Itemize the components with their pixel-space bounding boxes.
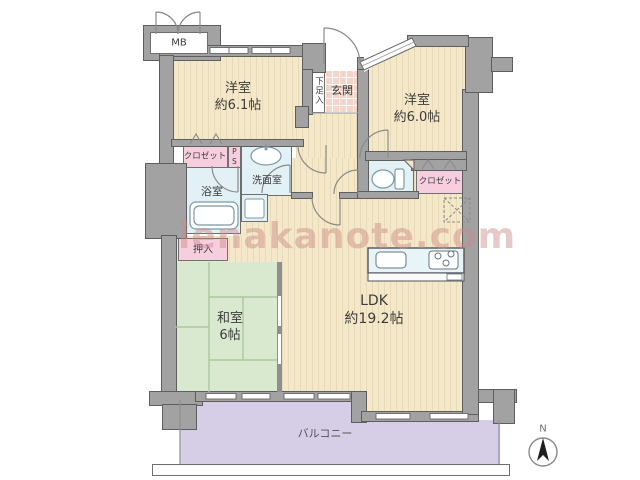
meter-box-label: MB [171,37,187,50]
sink-icon [251,144,281,165]
pipe-space-label: PS [229,147,239,167]
shoe-box-label: 下足入 [312,77,323,106]
door-arcs [212,28,388,225]
north-label: N [539,424,546,435]
toilet-door-arc [334,170,358,194]
closet-right-label: クロゼット [419,176,462,187]
closet-left-label: クロゼット [184,151,227,162]
balcony-label: バルコニー [298,427,353,441]
watermark: ienakanote.com [178,216,516,257]
floor-plan: MB 洋室約6.1帖 洋室約6.0帖 玄関 下足入 クロゼット PS 洗面室 浴… [0,0,640,480]
entrance-label: 玄関 [331,84,353,98]
washroom-label: 洗面室 [252,175,282,188]
bedroom2-door-arc [360,130,388,158]
bedroom1-label: 洋室約6.1帖 [215,81,262,115]
hanger-icons-right [422,160,456,169]
bedroom1-door-arc [298,145,326,173]
bedroom2-corner-window [360,38,416,72]
front-door-arc [324,28,360,64]
bathroom-label: 浴室 [201,185,223,199]
toilet-icon [372,169,404,189]
japanese-room-label: 和室6帖 [217,311,243,345]
ldk-label: LDK約19.2帖 [344,292,403,328]
toilet-corner-cut [404,160,414,170]
north-compass-icon [529,438,557,466]
mb-double-door-icon [156,12,200,34]
hanger-icons-left [190,134,222,144]
bedroom2-label: 洋室約6.0帖 [394,93,441,127]
